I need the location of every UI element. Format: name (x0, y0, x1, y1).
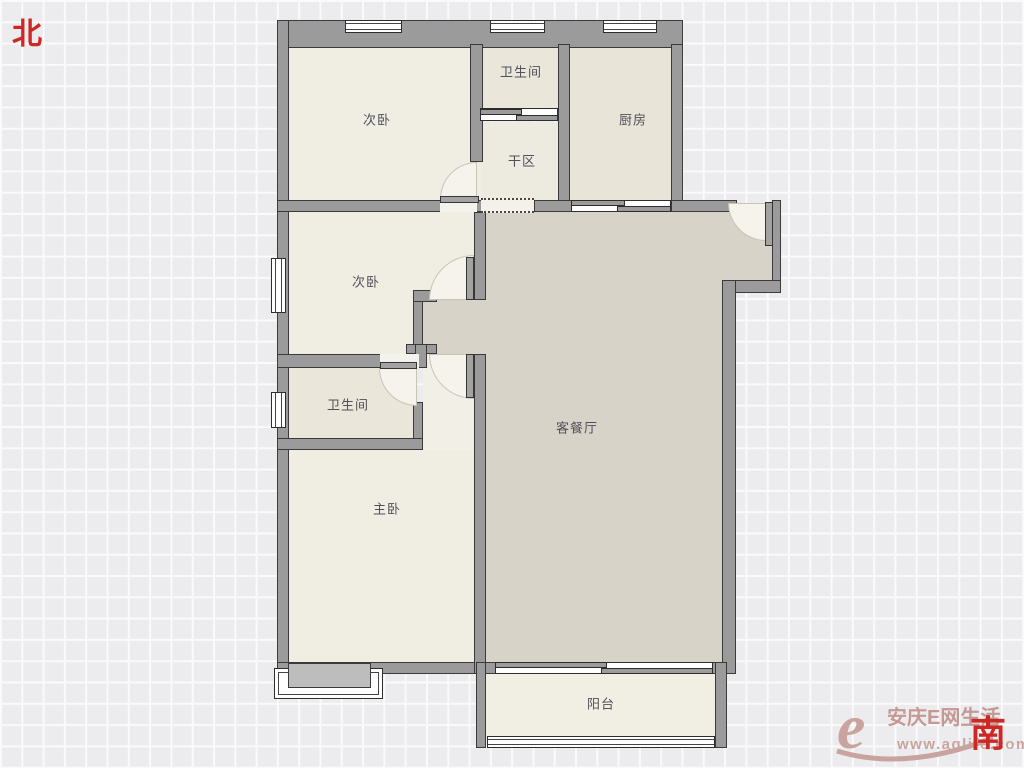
wall-bathroom-west-bottom (277, 438, 423, 450)
room-label-kitchen: 厨房 (619, 110, 647, 129)
room-label-master-bedroom: 主卧 (373, 499, 401, 518)
wall-balcony-left (476, 662, 486, 748)
balcony-railing-window (487, 736, 715, 748)
wall-kitchen-left (558, 44, 570, 212)
wall-living-top-a (534, 200, 572, 212)
door-leaf-bathroom-west (380, 362, 417, 369)
door-leaf-bedroom-north (440, 196, 479, 203)
wall-bedroom-north-right (470, 44, 483, 162)
room-fill-master-bedroom (289, 450, 474, 662)
room-label-bathroom-west: 卫生间 (327, 395, 369, 414)
wall-right-lower (722, 280, 736, 674)
door-leaf-bedroom-west (466, 257, 474, 300)
room-label-dry-area: 干区 (508, 151, 536, 170)
open-passage-dry-area (481, 198, 534, 213)
bay-window-master-sill (288, 663, 371, 688)
room-label-bathroom-north: 卫生间 (500, 62, 542, 81)
wall-kitchen-right (671, 44, 683, 212)
sliding-door-panel (601, 668, 713, 674)
wall-living-top-b (671, 200, 737, 212)
compass-south-label: 南 (970, 716, 1006, 752)
wall-living-west-lower (474, 354, 486, 674)
room-fill-living-dining (486, 212, 722, 662)
window-bathroom-north (490, 20, 545, 33)
window-kitchen (603, 20, 657, 33)
sliding-door-panel (617, 206, 671, 212)
window-bedroom-west (271, 258, 286, 313)
window-bathroom-west (271, 392, 286, 428)
room-label-bedroom-north: 次卧 (363, 110, 391, 129)
room-label-bedroom-west: 次卧 (352, 272, 380, 291)
window-bedroom-north (345, 20, 402, 33)
door-leaf-entry (765, 202, 773, 246)
floor-plan (0, 0, 1024, 768)
wall-exterior-left (277, 20, 289, 674)
wall-balcony-right (715, 662, 727, 748)
wall-living-west-upper (474, 212, 486, 300)
compass-north-label: 北 (12, 20, 42, 50)
door-leaf-master-bedroom (466, 354, 474, 398)
sliding-door-panel (495, 662, 607, 668)
sliding-door-panel (516, 115, 558, 121)
floor-plan-page: { "compass": { "north": "北", "south": "南… (0, 0, 1024, 768)
room-label-living-dining: 客餐厅 (556, 418, 598, 437)
room-label-balcony: 阳台 (587, 694, 615, 713)
